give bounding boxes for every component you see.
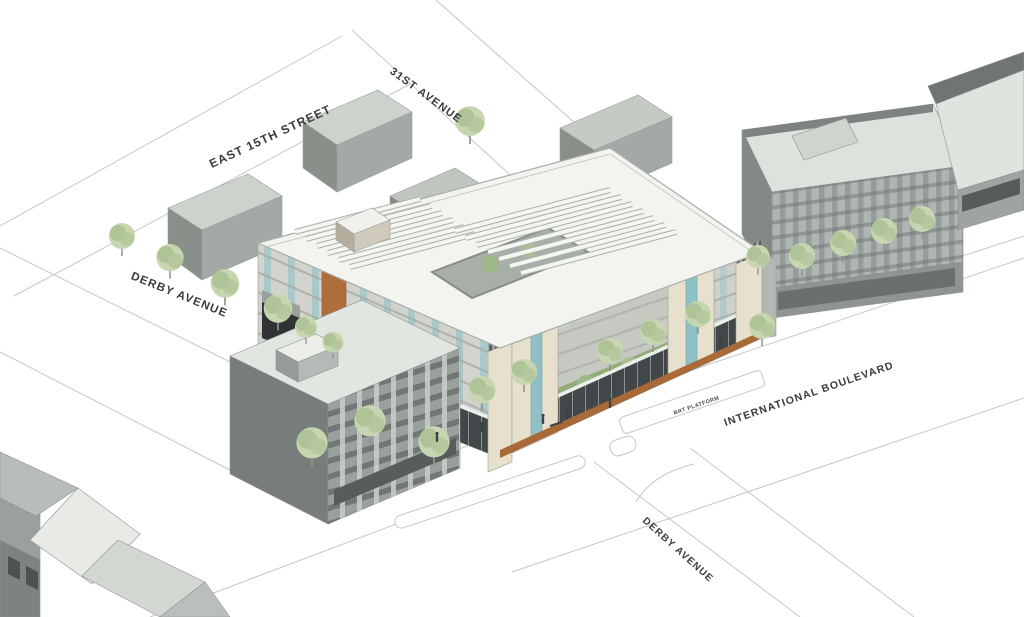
rendering-canvas: EAST 15TH STREET 31ST AVENUE DERBY AVENU…: [0, 0, 1024, 617]
intersection-corner-curve: [636, 464, 694, 502]
street-label-international-boulevard: INTERNATIONAL BOULEVARD: [723, 359, 896, 429]
derby-avenue-south-edge: [594, 462, 800, 617]
corner-island: [608, 434, 638, 458]
derby-avenue-west-edge: [0, 352, 230, 470]
international-blvd-curb: [512, 398, 1024, 572]
courtyard-tree: [481, 255, 499, 273]
corner-buildings-southwest: [0, 452, 230, 617]
street-label-derby-avenue-south: DERBY AVENUE: [640, 515, 715, 584]
site-plan-rendering: EAST 15TH STREET 31ST AVENUE DERBY AVENU…: [0, 0, 1024, 617]
